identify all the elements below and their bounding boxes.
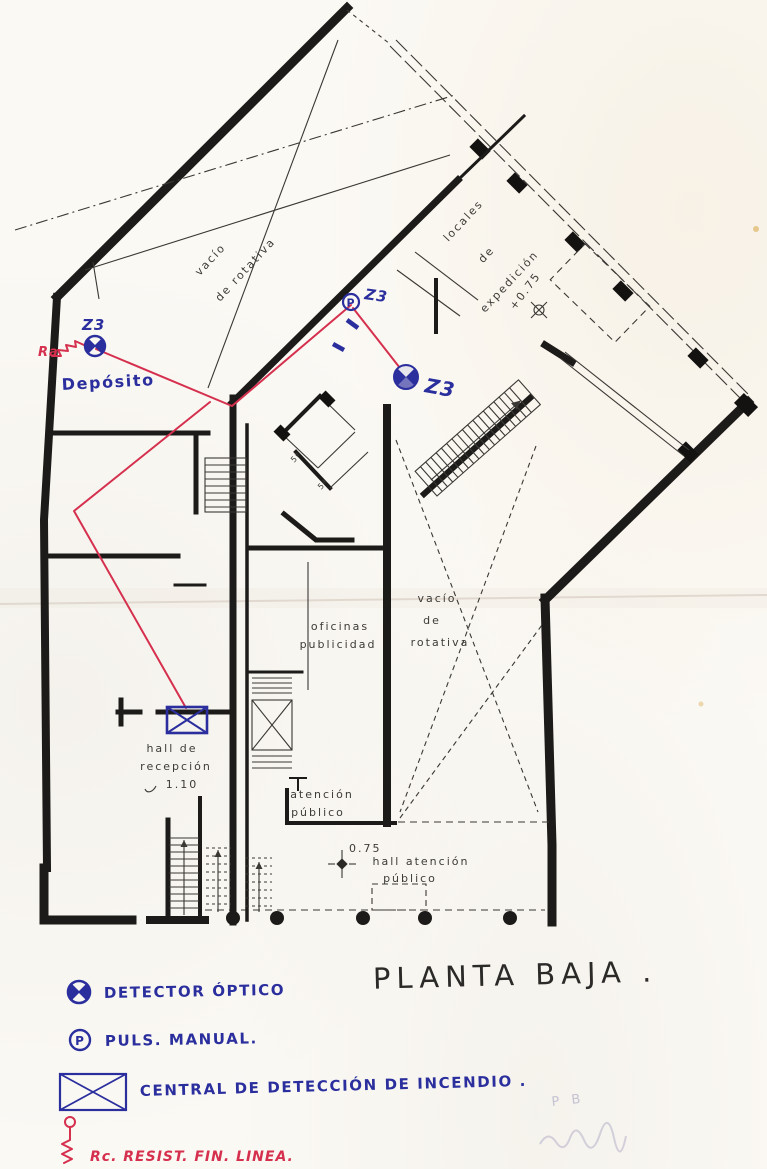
locales-expedicion-area: locales de expedición +0.75	[397, 197, 650, 342]
lower-rotary-void: vacío de rotativa	[387, 345, 689, 823]
room-label-locales-1: locales	[441, 197, 486, 244]
room-label-hall-recepcion-2: recepción	[140, 760, 212, 773]
left-rooms	[48, 398, 247, 922]
room-label-vacio-lower-1: vacío	[417, 592, 456, 605]
device-annotations: Z3 Depósito P Z3 Z3	[61, 285, 457, 733]
wiring-line	[232, 305, 351, 406]
room-label-vacio-lower-3: rotativa	[411, 636, 470, 649]
room-label-vacio-upper-1: vacío	[192, 241, 228, 278]
counter-dashed	[372, 884, 426, 910]
room-label-hall-atencion-1: hall atención	[373, 855, 470, 868]
pencil-marks: P B	[540, 1092, 626, 1152]
zone-label-2: Z3	[362, 285, 389, 306]
room-label-small-b: 5ª	[316, 477, 330, 491]
legend-resistor-label: Rc. RESIST. FIN. LINEA.	[90, 1149, 294, 1165]
plan-title: PLANTA BAJA .	[372, 954, 657, 995]
optical-detector-icon	[394, 365, 418, 389]
pencil-note: P B	[551, 1092, 585, 1110]
legend-callpoint-label: PULS. MANUAL.	[105, 1029, 258, 1050]
svg-text:P: P	[75, 1034, 85, 1048]
void-top-wall	[560, 352, 689, 456]
svg-text:P: P	[346, 297, 355, 310]
legend-panel-icon	[60, 1074, 126, 1110]
bottom-columns	[226, 911, 517, 925]
outer-wall-top-left	[57, 8, 347, 297]
paper-stain	[753, 226, 759, 232]
void-braces	[396, 440, 542, 818]
level-hook-icon	[145, 786, 156, 792]
level-label-recepcion: 1.10	[166, 778, 199, 791]
room-label-atencion-1: atención	[290, 788, 354, 801]
room-label-oficinas-2: publicidad	[300, 638, 377, 651]
room-label-hall-atencion-2: público	[383, 872, 437, 885]
zone-label-3: Z3	[422, 373, 457, 402]
center-rooms-cluster: 5ª 5ª	[274, 391, 368, 540]
legend: DETECTOR ÓPTICO P PULS. MANUAL. CENTRAL …	[60, 980, 527, 1165]
outer-wall-bottom-left-corner	[44, 868, 132, 920]
legend-detector-icon	[68, 981, 91, 1003]
small-stair	[205, 458, 246, 512]
building-outline	[44, 8, 758, 922]
stair-treads-mid	[252, 678, 292, 768]
room-label-locales-2: de	[476, 244, 498, 266]
eol-resistor-tag: Ra	[38, 345, 59, 360]
level-mark-top-icon	[531, 302, 547, 318]
room-label-oficinas-1: oficinas	[311, 620, 369, 633]
level-label-bottom: 0.75	[349, 842, 382, 855]
blue-tick-marks	[333, 320, 358, 350]
legend-callpoint-icon: P	[70, 1030, 90, 1050]
outer-wall-right-lower	[545, 598, 552, 922]
outer-wall-left	[44, 297, 57, 868]
deposito-label: Depósito	[61, 370, 155, 394]
facade-wall	[347, 10, 758, 463]
bottom-left-stairs	[168, 798, 272, 920]
room-label-vacio-lower-2: de	[423, 614, 441, 627]
zone-label-1: Z3	[81, 316, 105, 334]
dashed-cabin	[550, 244, 649, 342]
legend-resistor-icon	[62, 1117, 75, 1163]
room-label-hall-recepcion-1: hall de	[146, 742, 197, 755]
outer-wall-right-diagonal	[545, 402, 748, 600]
floor-plan-drawing: vacío de rotativa locales de expedición …	[0, 0, 767, 1169]
paper-stain	[699, 702, 704, 707]
legend-detector-label: DETECTOR ÓPTICO	[104, 980, 286, 1002]
legend-panel-label: CENTRAL DE DETECCIÓN DE INCENDIO .	[140, 1071, 528, 1100]
hall-recepcion-area: hall de recepción 1.10	[140, 742, 212, 792]
scanned-floor-plan-page: vacío de rotativa locales de expedición …	[0, 0, 767, 1169]
signature-scribble	[540, 1123, 626, 1152]
optical-detector-icon	[85, 336, 105, 356]
pillar	[319, 391, 336, 408]
room-label-atencion-2: público	[291, 806, 345, 819]
lift-shaft	[252, 700, 292, 750]
cross-brace	[208, 40, 338, 388]
manual-callpoint-icon: P	[343, 294, 359, 310]
middle-block: oficinas publicidad	[247, 548, 388, 768]
